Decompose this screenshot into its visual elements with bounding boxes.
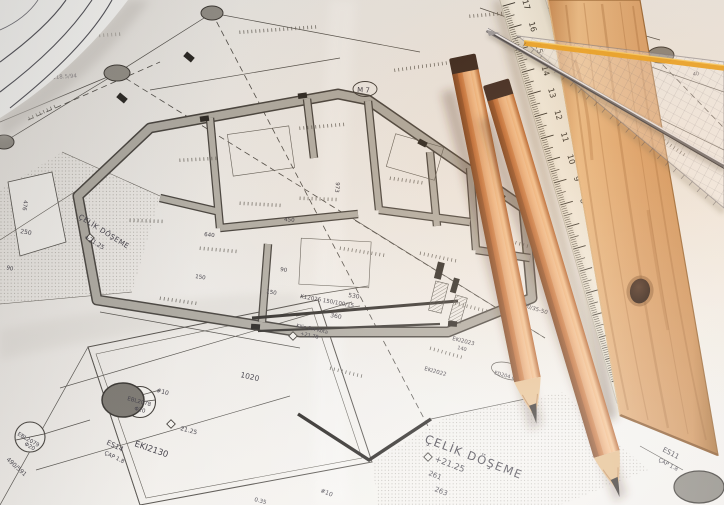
photo-blueprint-scene: ÇELİK DÖŞEME +21.25 261 263 ÇELİK DÖŞEME… [0,0,724,505]
blueprint-and-tools: ÇELİK DÖŞEME +21.25 261 263 ÇELİK DÖŞEME… [0,0,724,505]
label: 973 [333,182,340,193]
label: 640 [204,232,216,239]
column-large-right [674,471,724,503]
label: 90 [280,267,288,274]
label: 450 [284,217,295,224]
label: M 7 [357,86,370,95]
